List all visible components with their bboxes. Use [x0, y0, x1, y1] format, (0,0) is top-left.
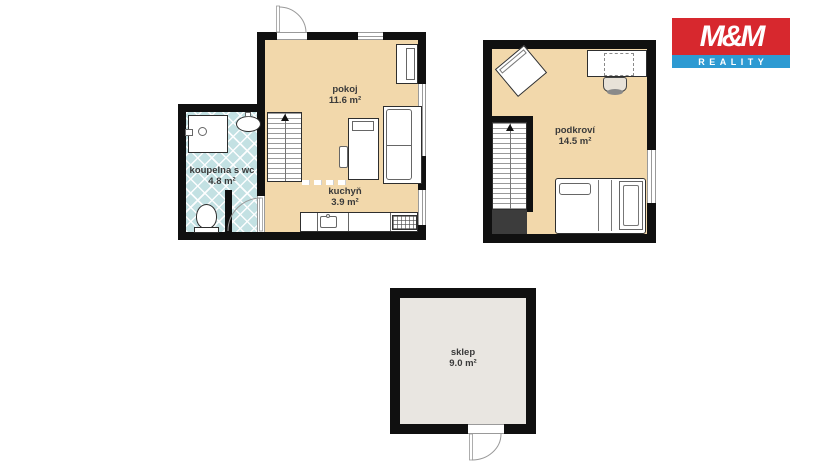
- room-label-kuchyn: kuchyň 3.9 m²: [295, 186, 395, 208]
- floorplan-page: pokoj 11.6 m² kuchyň 3.9 m² koupelna s w…: [0, 0, 832, 468]
- bed: [555, 178, 646, 234]
- wall-segment: [483, 40, 656, 49]
- stairs-centerline: [510, 123, 511, 209]
- wall-segment: [504, 424, 536, 434]
- wall-segment: [390, 424, 468, 434]
- desk-dashed-area: [604, 53, 634, 76]
- stairs-up-arrow-icon: [506, 124, 514, 131]
- faucet-icon: [326, 214, 330, 218]
- door-opening: [257, 196, 265, 232]
- door-leaf-entrance: [277, 6, 280, 32]
- room-area: 4.8 m²: [172, 176, 272, 187]
- bathroom-sink: [236, 116, 261, 132]
- blanket-fold: [611, 180, 612, 231]
- stairs-up-arrow-icon: [281, 114, 289, 121]
- kitchen-counter: [300, 212, 418, 232]
- mnm-reality-logo: M&M REALITY: [672, 18, 790, 68]
- counter-divider: [348, 213, 349, 231]
- room-label-podkrovi: podkroví 14.5 m²: [525, 125, 625, 147]
- wall-segment: [390, 288, 536, 298]
- room-name: sklep: [413, 347, 513, 358]
- wall-segment: [483, 40, 492, 243]
- room-name: koupelna s wc: [172, 165, 272, 176]
- room-label-koupelna: koupelna s wc 4.8 m²: [172, 165, 272, 187]
- shower-drain-icon: [198, 127, 207, 136]
- desk-monitor: [352, 121, 374, 131]
- sofa-bed: [383, 106, 422, 184]
- room-name: podkroví: [525, 125, 625, 136]
- window: [647, 150, 656, 203]
- counter-divider: [390, 213, 391, 231]
- wall-segment: [647, 40, 656, 150]
- stairs-attic: [492, 122, 527, 210]
- door-swing-cellar: [472, 434, 501, 460]
- attic-chair-base: [607, 89, 623, 95]
- desk: [348, 118, 379, 180]
- wall-segment: [225, 190, 232, 232]
- stairs-centerline: [285, 113, 286, 181]
- toilet-tank: [194, 227, 219, 233]
- room-area: 3.9 m²: [295, 197, 395, 208]
- attic-desk: [587, 50, 647, 77]
- tv-cabinet-inner: [406, 48, 415, 80]
- logo-subtitle: REALITY: [672, 55, 790, 68]
- wall-segment: [307, 32, 358, 40]
- door-opening: [468, 424, 504, 434]
- door-swing-entrance: [279, 7, 306, 32]
- toilet-bowl: [196, 204, 217, 229]
- wall-segment: [257, 32, 265, 112]
- window: [418, 190, 426, 225]
- shower: [188, 115, 228, 153]
- wall-segment: [418, 32, 426, 84]
- room-area: 9.0 m²: [413, 358, 513, 369]
- door-leaf-cellar: [470, 434, 473, 460]
- stairs-ground: [267, 112, 302, 182]
- bed-pillow: [559, 183, 591, 195]
- desk-chair: [339, 146, 348, 168]
- room-label-sklep: sklep 9.0 m²: [413, 347, 513, 369]
- door-opening: [277, 32, 307, 40]
- wall-segment: [178, 232, 426, 240]
- room-divider-dashed: [302, 180, 348, 185]
- sofa-cushion-divider: [386, 145, 412, 146]
- room-area: 14.5 m²: [525, 136, 625, 147]
- window: [358, 32, 383, 40]
- tv-cabinet: [396, 44, 418, 84]
- counter-divider: [317, 213, 318, 231]
- headboard-inner: [623, 185, 639, 226]
- logo-title: M&M: [672, 18, 790, 55]
- wall-segment: [526, 288, 536, 434]
- stove-burners: [392, 215, 417, 230]
- room-label-pokoj: pokoj 11.6 m²: [295, 84, 395, 106]
- wall-segment: [390, 288, 400, 434]
- understairs-void: [492, 210, 527, 234]
- room-name: kuchyň: [295, 186, 395, 197]
- bed-headboard: [619, 181, 643, 230]
- sink-tap-icon: [245, 112, 251, 117]
- blanket-fold: [598, 180, 599, 231]
- shower-faucet-icon: [185, 129, 193, 136]
- room-name: pokoj: [295, 84, 395, 95]
- wall-segment: [178, 104, 265, 112]
- wall-segment: [483, 234, 656, 243]
- room-area: 11.6 m²: [295, 95, 395, 106]
